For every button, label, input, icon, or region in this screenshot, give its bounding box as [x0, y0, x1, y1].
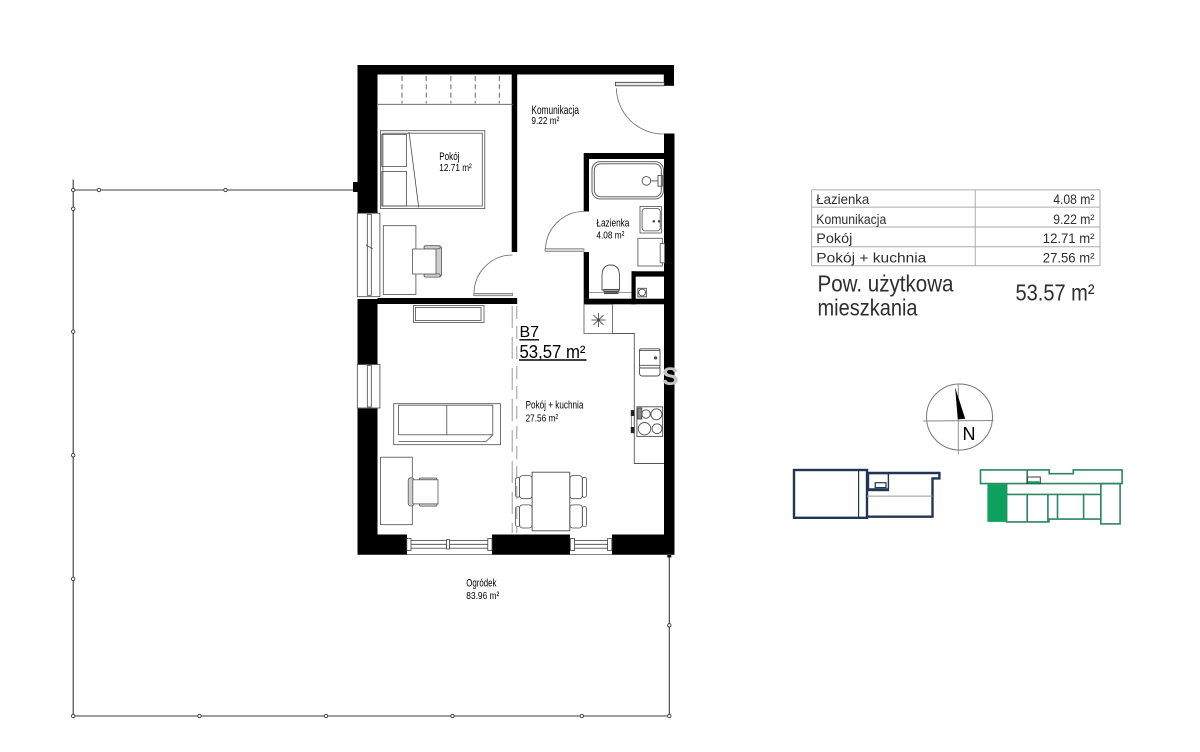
- svg-text:53.57 m²: 53.57 m²: [1016, 279, 1095, 305]
- svg-text:Łazienka: Łazienka: [596, 218, 630, 230]
- svg-text:12.71 m²: 12.71 m²: [1043, 230, 1095, 246]
- svg-text:83.96 m²: 83.96 m²: [466, 590, 499, 602]
- svg-text:Pokój + kuchnia: Pokój + kuchnia: [816, 250, 926, 266]
- svg-text:Pokój + kuchnia: Pokój + kuchnia: [526, 400, 584, 412]
- svg-text:4.08 m²: 4.08 m²: [596, 230, 624, 242]
- svg-text:9.22 m²: 9.22 m²: [531, 115, 559, 127]
- svg-text:S: S: [662, 363, 679, 391]
- svg-text:27.56 m²: 27.56 m²: [526, 413, 559, 425]
- svg-text:9.22 m²: 9.22 m²: [1053, 211, 1095, 227]
- svg-text:Pokój: Pokój: [816, 230, 852, 246]
- svg-text:53,57 m²: 53,57 m²: [520, 342, 586, 362]
- svg-text:4.08 m²: 4.08 m²: [1053, 191, 1095, 207]
- svg-text:Ogródek: Ogródek: [466, 578, 497, 590]
- svg-text:B7: B7: [520, 324, 540, 341]
- svg-text:Łazienka: Łazienka: [816, 191, 869, 207]
- svg-text:Pow. użytkowa: Pow. użytkowa: [818, 271, 954, 297]
- svg-text:mieszkania: mieszkania: [818, 295, 918, 321]
- svg-text:27.56 m²: 27.56 m²: [1043, 250, 1095, 266]
- svg-text:12.71 m²: 12.71 m²: [439, 162, 472, 174]
- svg-text:N: N: [963, 424, 976, 444]
- svg-text:Komunikacja: Komunikacja: [816, 211, 886, 227]
